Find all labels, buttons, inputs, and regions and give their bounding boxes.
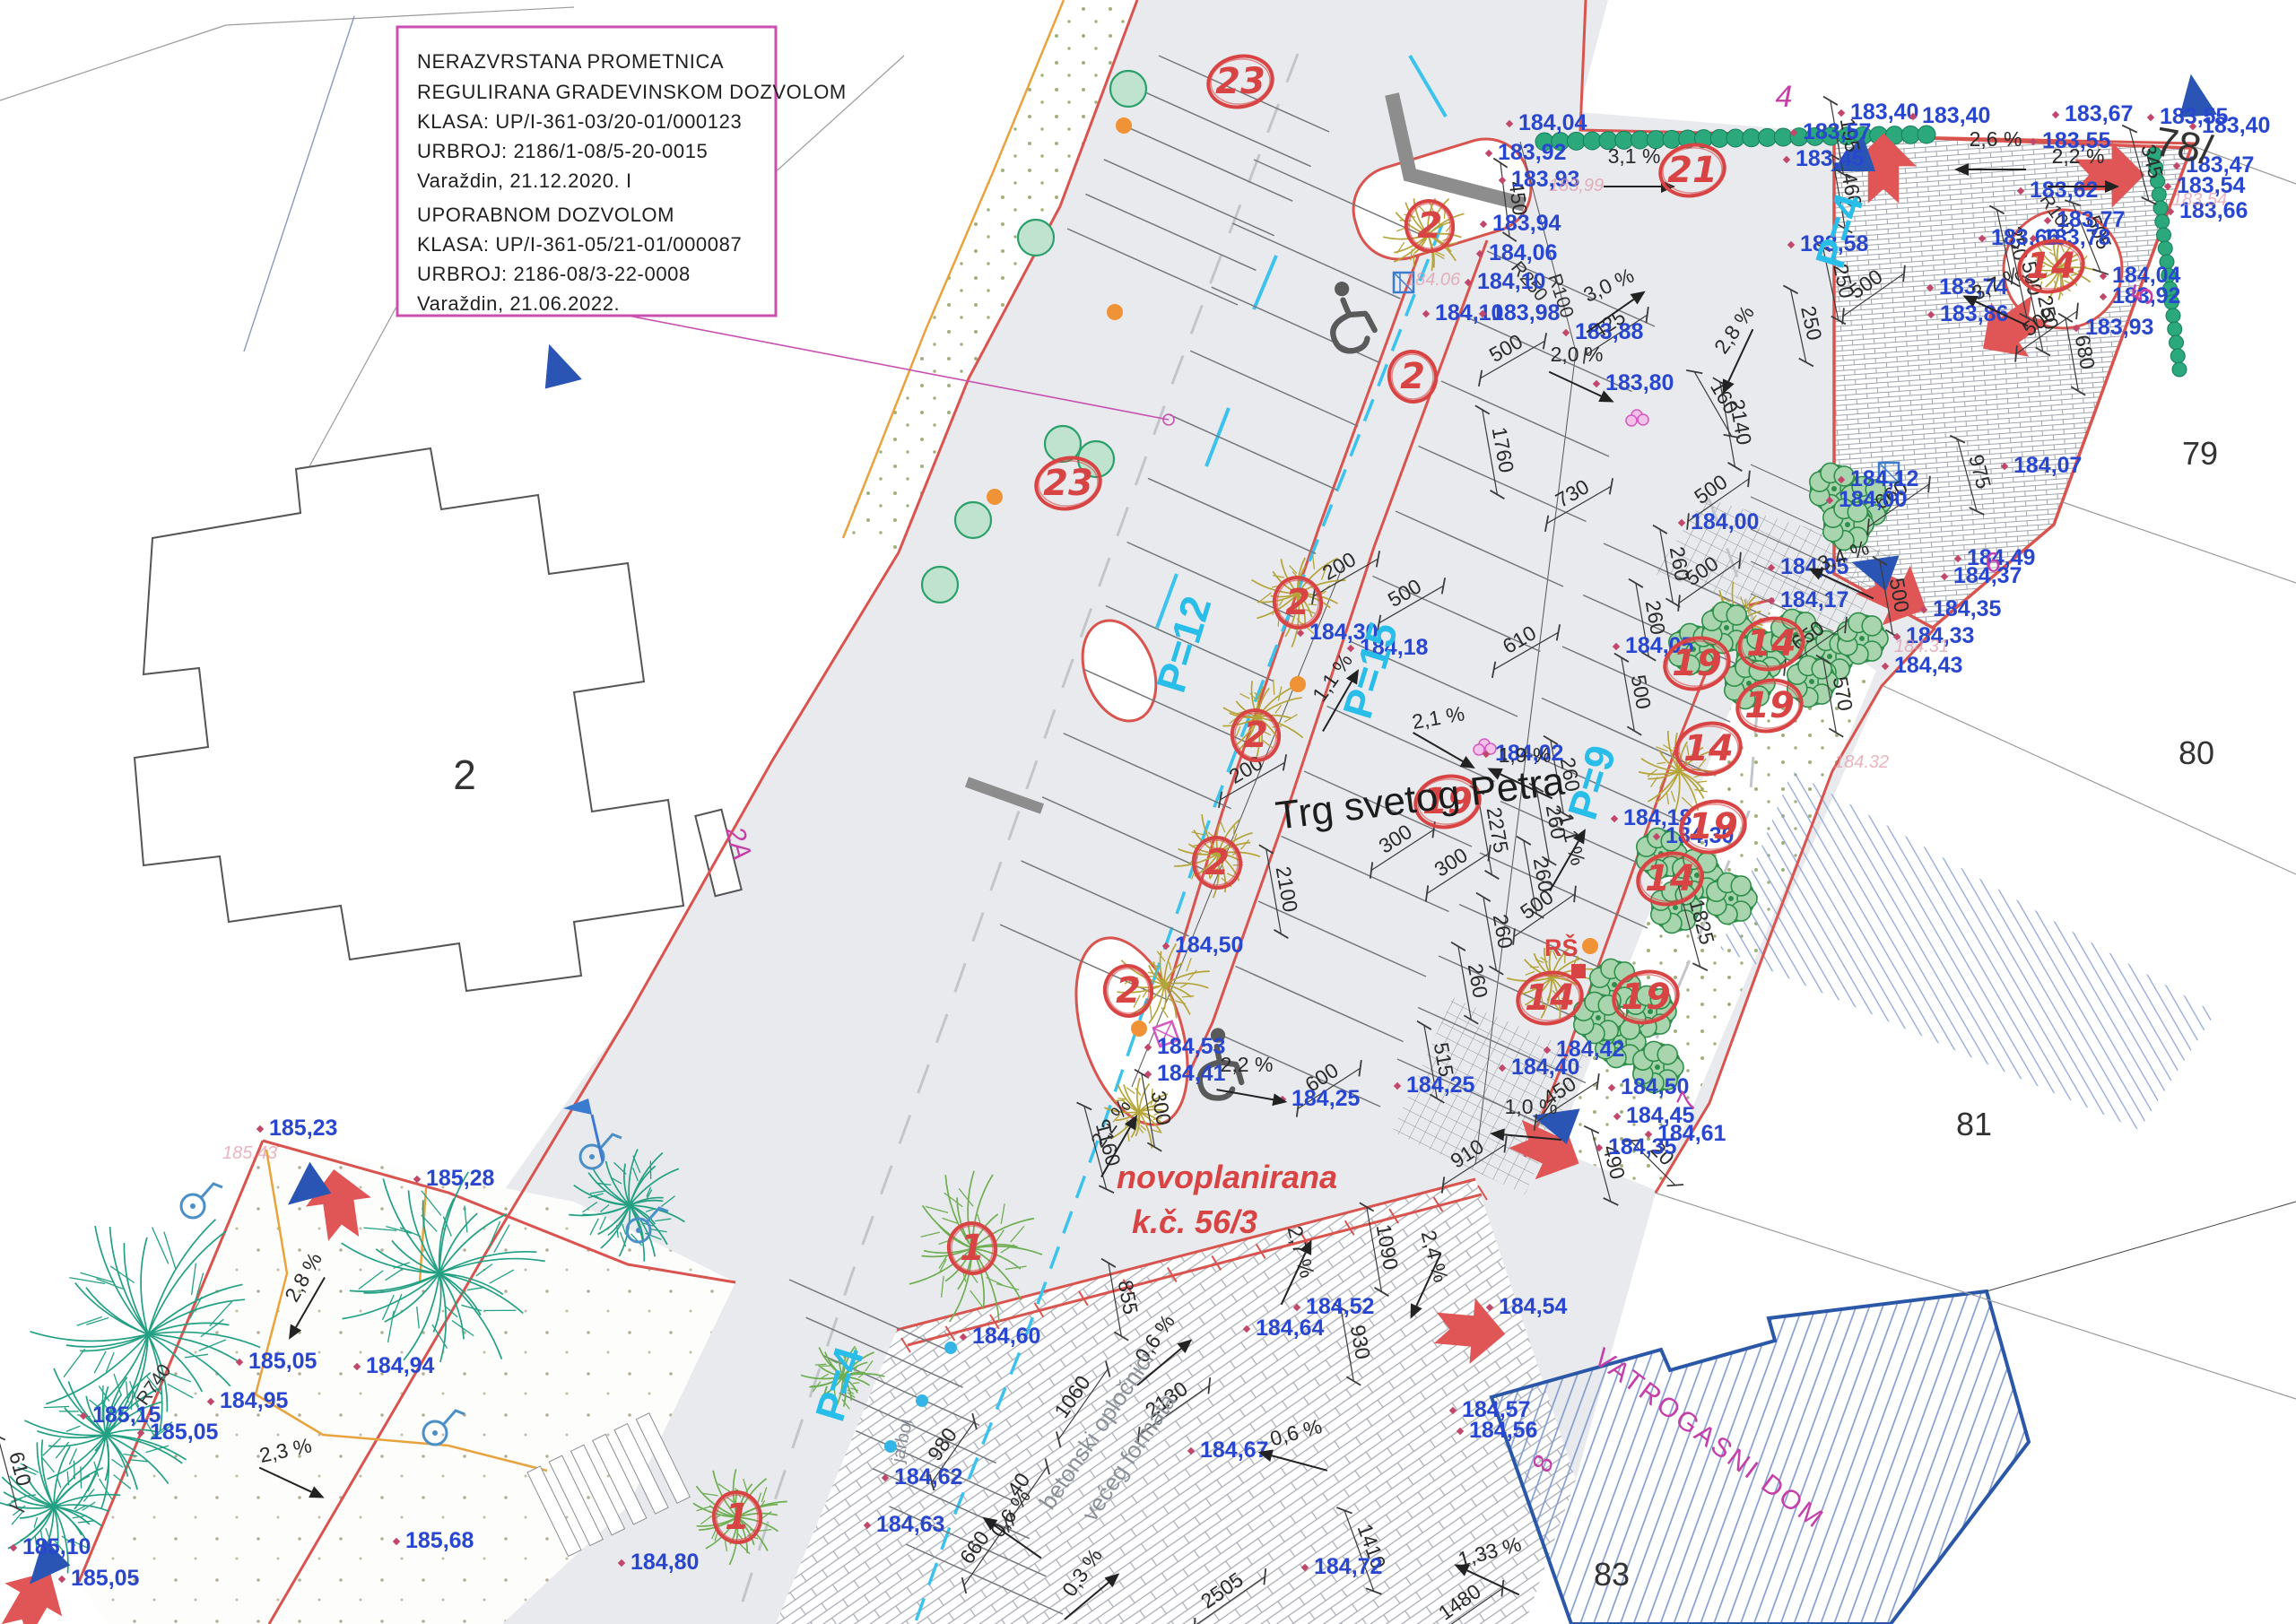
- plan-text: 14: [1746, 623, 1796, 664]
- legend-line: REGULIRANA GRADEVINSKOM DOZVOLOM: [417, 81, 847, 103]
- elevation-label: 184,00: [1839, 487, 1907, 512]
- elevation-label: 184,64: [1256, 1316, 1325, 1341]
- elevation-marker: [10, 1544, 17, 1551]
- plan-line: [81, 1466, 82, 1489]
- plan-text: 23: [1215, 61, 1265, 102]
- elevation-label: 183,62: [2030, 178, 2098, 203]
- plan-line: [44, 1406, 69, 1407]
- tree-icon: [1110, 71, 1146, 107]
- plan-text: 2: [1417, 205, 1442, 247]
- plan-circle: [1845, 522, 1850, 527]
- hedge-icon: [1759, 128, 1777, 146]
- plan-circle: [1731, 876, 1751, 896]
- plan-line: [126, 1381, 128, 1403]
- plan-circle: [589, 1154, 595, 1159]
- parcel-line: [226, 7, 574, 25]
- elevation-label: 185,68: [405, 1528, 474, 1553]
- plan-line: [69, 1448, 76, 1464]
- elevation-label: 185,05: [248, 1349, 317, 1374]
- plan-line: [64, 1349, 85, 1377]
- elevation-label: 184,35: [1933, 596, 2002, 621]
- hedge-icon: [2166, 308, 2180, 323]
- flagpole-icon: [944, 1342, 957, 1354]
- building-outline: [135, 448, 683, 991]
- hedge-icon: [2172, 362, 2187, 377]
- new-parcel-label: novoplanirana: [1117, 1159, 1337, 1195]
- legend-line: KLASA: UP/I-361-05/21-01/000087: [417, 233, 742, 256]
- elevation-label: 183,92: [1498, 140, 1566, 165]
- plan-line: [34, 1517, 37, 1528]
- shaft-label: RŠ: [1544, 934, 1578, 961]
- plan-circle: [190, 1203, 196, 1209]
- plan-text: 19: [1672, 643, 1722, 684]
- plan-circle: [1862, 616, 1882, 636]
- elevation-label: 183,40: [1850, 100, 1918, 125]
- plan-text: 19: [1688, 806, 1738, 847]
- plan-path: [201, 1184, 222, 1198]
- plan-line: [57, 1478, 61, 1488]
- flagpole-icon: [916, 1394, 928, 1407]
- elevation-label: 184,43: [1894, 653, 1962, 678]
- plan-circle: [1596, 1015, 1601, 1020]
- parcel-number: 78/: [2152, 117, 2216, 173]
- hedge-icon: [2152, 187, 2166, 202]
- hedge-icon: [1743, 129, 1761, 147]
- plan-line: [66, 1426, 80, 1431]
- plan-line: [152, 1228, 169, 1264]
- plan-text: 14: [1683, 728, 1734, 769]
- plan-text: 2: [1400, 356, 1425, 397]
- triangle-icon: [545, 344, 585, 392]
- parcel-line: [2063, 502, 2296, 583]
- parcel-number: 80: [2179, 734, 2214, 771]
- elevation-label: 185,23: [269, 1116, 337, 1141]
- plan-text: 1: [725, 1497, 750, 1538]
- ghost-label: 184.31: [1894, 637, 1949, 656]
- hedge-icon: [2158, 241, 2172, 256]
- legend-line: URBROJ: 2186/1-08/5-20-0015: [417, 140, 708, 162]
- plan-text: 1,0 %: [1505, 1095, 1558, 1118]
- elevation-label: 184,06: [1489, 240, 1557, 265]
- elevation-label: 183,86: [1940, 301, 2008, 326]
- elevation-label: 184,04: [1518, 110, 1587, 135]
- new-parcel-label: k.č. 56/3: [1132, 1203, 1257, 1240]
- elevation-marker: [2052, 111, 2059, 118]
- elevation-label: 183,67: [2065, 101, 2133, 126]
- elevation-label: 184,95: [220, 1388, 289, 1413]
- elevation-label: 183,94: [1492, 211, 1561, 236]
- plan-path: [37, 1442, 54, 1507]
- lamp-icon: [181, 1184, 222, 1218]
- hedge-icon: [2170, 335, 2184, 350]
- plan-line: [42, 1458, 54, 1472]
- plan-text: 2,2 %: [1221, 1053, 1274, 1076]
- survey-line: [244, 16, 354, 352]
- site-plan: 4504255001760730214016020050061020021003…: [0, 0, 2296, 1624]
- elevation-label: 185,05: [71, 1566, 140, 1591]
- plan-line: [1987, 1202, 2296, 1291]
- elevation-label: 183,88: [1575, 319, 1644, 344]
- plan-circle: [636, 1228, 641, 1233]
- parcel-line: [0, 25, 226, 100]
- plan-circle: [1657, 1045, 1677, 1064]
- hedge-icon: [2153, 201, 2168, 215]
- plan-circle: [1724, 625, 1729, 630]
- elevation-label: 184,60: [972, 1324, 1040, 1349]
- plan-text: 14: [1525, 977, 1575, 1019]
- plan-circle: [432, 1430, 438, 1436]
- elevation-label: 184,41: [1157, 1061, 1226, 1086]
- elevation-label: 184,54: [1499, 1294, 1568, 1319]
- shrub-icon: [1116, 117, 1132, 134]
- elevation-label: 183,77: [2057, 207, 2125, 232]
- plan-circle: [1673, 905, 1678, 910]
- plan-text: 2,6 %: [1970, 127, 2022, 151]
- elevation-label: 183,98: [1492, 300, 1561, 326]
- parcel-number: 79: [2182, 435, 2218, 472]
- plan-text: 3,1 %: [1608, 144, 1661, 168]
- elevation-label: 183,80: [1605, 370, 1674, 395]
- plan-line: [56, 1442, 68, 1458]
- elevation-label: 184,80: [631, 1550, 699, 1575]
- legend-line: URBROJ: 2186-08/3-22-0008: [417, 263, 691, 285]
- legend-line: Varaždin, 21.06.2022.: [417, 292, 620, 315]
- parcel-number: 2: [453, 751, 476, 798]
- elevation-label: 184,17: [1780, 587, 1848, 612]
- tree-icon: [922, 567, 958, 603]
- elevation-label: 185,10: [22, 1534, 91, 1559]
- plan-text: 2: [1205, 842, 1230, 883]
- elevation-label: 184,10: [1477, 269, 1545, 294]
- plan-line: [192, 1264, 196, 1295]
- shaft-marker: [1571, 964, 1586, 978]
- elevation-label: 185,28: [426, 1166, 495, 1191]
- plan-circle: [1474, 744, 1484, 755]
- ghost-label: 183.54: [2172, 190, 2227, 210]
- parcel-line: [771, 56, 904, 176]
- plan-circle: [1726, 605, 1746, 625]
- plan-text: 23: [1043, 463, 1093, 504]
- plan-path: [141, 1238, 148, 1334]
- elevation-marker: [257, 1125, 264, 1133]
- hedge-icon: [1774, 128, 1792, 146]
- ghost-label: 185.43: [222, 1143, 277, 1163]
- shrub-icon: [1290, 676, 1306, 692]
- elevation-label: 184,25: [1291, 1086, 1361, 1111]
- plan-line: [106, 1352, 114, 1372]
- plan-text: 21: [1667, 150, 1718, 191]
- elevation-label: 185,05: [150, 1420, 219, 1445]
- hedge-icon: [2168, 322, 2182, 336]
- plan-circle: [1831, 486, 1837, 491]
- plan-path: [42, 1439, 54, 1507]
- plan-text: 1: [960, 1228, 985, 1269]
- shrub-icon: [1131, 1020, 1147, 1037]
- hedge-icon: [2157, 228, 2171, 242]
- parcel-number: 4: [1776, 80, 1793, 114]
- shrub-icon: [1107, 304, 1123, 320]
- plan-circle: [1638, 414, 1648, 425]
- legend-line: Varaždin, 21.12.2020. I: [417, 169, 632, 192]
- legend-line: UPORABNOM DOZVOLOM: [417, 204, 674, 226]
- hedge-icon: [2170, 349, 2185, 363]
- plan-circle: [1859, 636, 1865, 641]
- hedge-icon: [1710, 129, 1728, 147]
- elevation-label: 184,07: [2013, 453, 2082, 478]
- plan-circle: [1827, 654, 1832, 659]
- elevation-marker: [58, 1576, 65, 1583]
- plan-text: 2,0 %: [1551, 343, 1604, 366]
- parcel-number: 83: [1594, 1556, 1630, 1593]
- hatched-band: [1720, 771, 2215, 1130]
- tree-icon: [955, 502, 991, 538]
- elevation-label: 184,50: [1175, 933, 1243, 958]
- ghost-label: 183,99: [1549, 176, 1604, 195]
- elevation-label: 184,56: [1469, 1418, 1537, 1443]
- elevation-label: 184,61: [1657, 1121, 1726, 1146]
- plan-line: [94, 1351, 106, 1373]
- plan-circle: [1655, 1064, 1660, 1070]
- shrub-icon: [1582, 938, 1598, 954]
- hedge-icon: [1663, 130, 1681, 148]
- elevation-marker: [2147, 114, 2154, 121]
- plan-text: 19: [1621, 977, 1671, 1018]
- elevation-label: 184,53: [1157, 1034, 1225, 1059]
- elevation-label: 184,00: [1691, 509, 1759, 534]
- legend-line: NERAZVRSTANA PROMETNICA: [417, 50, 724, 73]
- plan-circle: [1626, 415, 1637, 426]
- plan-line: [97, 1279, 123, 1289]
- parcel-line: [309, 299, 401, 466]
- plan-text: 14: [1645, 858, 1695, 899]
- plan-text: 610: [4, 1449, 36, 1489]
- plan-line: [164, 1232, 176, 1269]
- elevation-label: 184,40: [1511, 1055, 1579, 1080]
- plan-line: [1413, 254, 1414, 266]
- plan-text: 2: [1116, 970, 1141, 1012]
- elevation-marker: [1838, 109, 1845, 117]
- shrub-icon: [987, 489, 1003, 505]
- elevation-label: 184,67: [1200, 1437, 1268, 1463]
- site-plan-canvas: 4504255001760730214016020050061020021003…: [0, 0, 2296, 1624]
- plan-text: 2: [1285, 582, 1310, 623]
- parcel-number: 81: [1956, 1106, 1992, 1142]
- hedge-icon: [1918, 126, 1935, 143]
- parcel-line: [1883, 686, 2296, 874]
- plan-path: [30, 1332, 148, 1341]
- elevation-label: 183,45: [1796, 146, 1865, 171]
- plan-circle: [1809, 679, 1814, 684]
- plan-text: 19: [1744, 685, 1795, 726]
- ghost-label: 184.32: [1834, 752, 1889, 772]
- tree-icon: [1018, 220, 1054, 256]
- plan-line: [1823, 94, 1838, 107]
- plan-path: [75, 1283, 148, 1334]
- base-geometry: [0, 0, 2296, 1624]
- plan-line: [110, 1266, 135, 1283]
- legend-box: NERAZVRSTANA PROMETNICA REGULIRANA GRADE…: [397, 27, 847, 316]
- elevation-label: 183,93: [2085, 315, 2153, 340]
- ghost-label: 184.06: [1405, 270, 1461, 290]
- elevation-label: 184,25: [1406, 1073, 1475, 1098]
- hedge-icon: [1726, 129, 1744, 147]
- elevation-label: 184,63: [876, 1512, 944, 1537]
- plan-line: [0, 1429, 5, 1443]
- elevation-label: 184,94: [366, 1353, 435, 1378]
- legend-line: KLASA: UP/I-361-03/20-01/000123: [417, 110, 742, 133]
- plan-text: 2,2 %: [2052, 144, 2105, 168]
- plan-line: [112, 1459, 123, 1467]
- elevation-label: 183,40: [1922, 103, 1990, 128]
- hedge-icon: [2155, 214, 2170, 229]
- plan-text: 14: [2026, 246, 2076, 287]
- elevation-label: 184,72: [1314, 1554, 1382, 1579]
- hedge-icon: [1901, 126, 1919, 143]
- plan-text: 2: [1243, 715, 1268, 756]
- plan-circle: [1728, 896, 1734, 901]
- elevation-label: 184,62: [894, 1464, 962, 1489]
- plan-path: [86, 1288, 148, 1334]
